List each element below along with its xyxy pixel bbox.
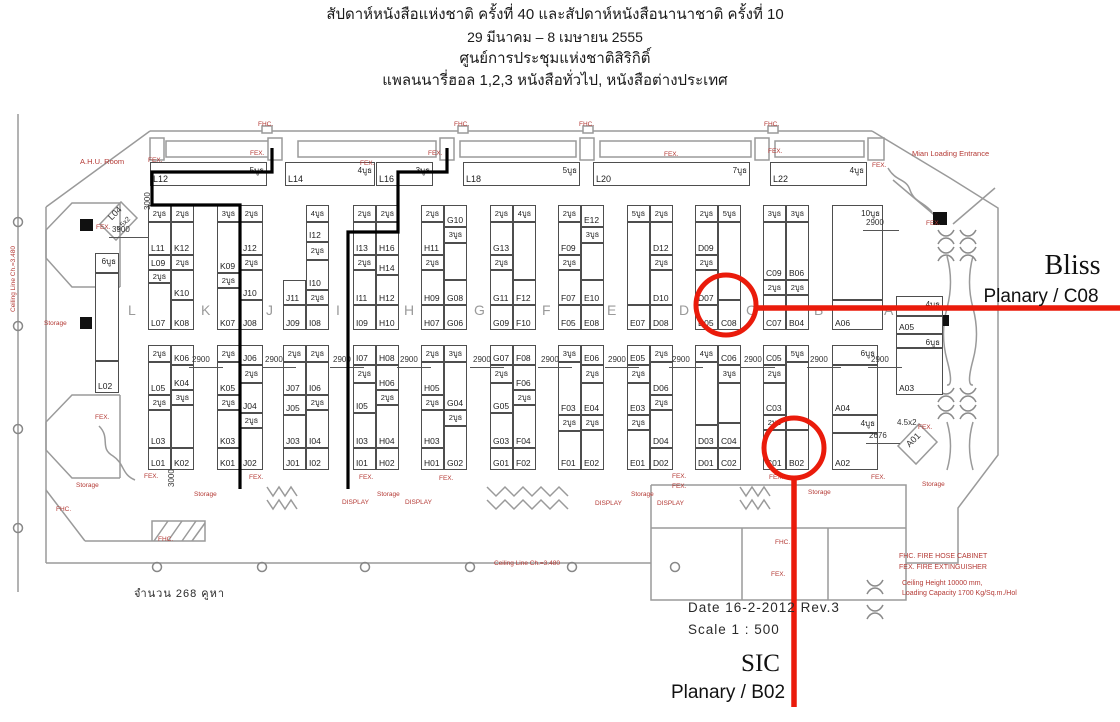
booth-id: H01 (424, 458, 440, 468)
booth-id: J02 (243, 458, 257, 468)
booth-cell-F07: F07 (558, 270, 581, 305)
booth-id: G07 (493, 353, 509, 363)
booth-count: 3บูธ (582, 229, 603, 241)
booth-cell-L07: L07 (148, 283, 171, 330)
booth-cell-2บูธ: 2บูธ (376, 390, 399, 405)
booth-cell-2บูธ: 2บูธ (490, 255, 513, 270)
booth-id: F06 (516, 378, 531, 388)
booth-cell-2บูธ: 2บูธ (217, 273, 240, 288)
booth-cell-E02: E02 (581, 430, 604, 470)
booth-id: C08 (721, 318, 737, 328)
plan-note: FEX. (96, 224, 110, 231)
zone-letter-C: C (746, 302, 756, 318)
plan-note: FEX. (926, 220, 940, 227)
zone-letter-G: G (474, 302, 485, 318)
booth-cell-J09: J09 (283, 305, 306, 330)
booth-count: 2บูธ (559, 208, 580, 220)
bliss-label: Bliss (1030, 250, 1115, 282)
booth-cell-I07: I07 (353, 345, 376, 365)
booth-cell-2บูธ: 2บูธ (421, 395, 444, 410)
booth-cell-2บูธ: 2บูธ (513, 390, 536, 405)
booth-count: 3บูธ (445, 229, 466, 241)
booth-count: 2บูธ (149, 348, 170, 360)
booth-cell-empty (627, 222, 650, 305)
booth-id: H10 (379, 318, 395, 328)
booth-cell-4บูธ: 4บูธ (513, 205, 536, 222)
booth-cell-2บูธ: 2บูธ (217, 395, 240, 410)
booth-cell-2บูธ: 2บูธ (695, 255, 718, 270)
booth-cell-2บูธ: 2บูธ (763, 415, 786, 430)
booth-id: H04 (379, 436, 395, 446)
dimension-label: L04 (106, 204, 124, 222)
booth-count: 2บูธ (307, 348, 328, 360)
dimension-line (807, 367, 841, 368)
booth-id: L02 (98, 381, 112, 391)
booth-cell-A03: A03 (896, 348, 943, 395)
booth-id: F03 (561, 403, 576, 413)
booth-id: E04 (584, 403, 599, 413)
booth-cell-2บูธ: 2บูธ (421, 255, 444, 270)
booth-cell-J12: J12 (240, 222, 263, 255)
booth-cell-2บูธ: 2บูธ (240, 255, 263, 270)
booth-id: F12 (516, 293, 531, 303)
booth-id: J09 (286, 318, 300, 328)
booth-count: 2บูธ (218, 348, 239, 360)
drawing-scale: Scale 1 : 500 (688, 622, 780, 637)
booth-cell-3บูธ: 3บูธ (444, 227, 467, 243)
booth-cell-empty (786, 362, 809, 430)
booth-cell-G01: G01 (490, 448, 513, 470)
booth-cell-2บูธ: 2บูธ (306, 345, 329, 362)
booth-count: 2บูธ (651, 257, 672, 269)
zone-letter-H: H (404, 302, 414, 318)
booth-cell-H11: H11 (421, 222, 444, 255)
booth-layout: 2บูธL11L092บูธL072บูธK122บูธK10K083บูธK0… (0, 0, 1120, 722)
booth-cell-3บูธ: 3บูธ (444, 345, 467, 362)
booth-id: I12 (309, 230, 321, 240)
booth-cell-3บูธ: 3บูธ (217, 205, 240, 222)
booth-id: D10 (653, 293, 669, 303)
plan-note: FEX. (918, 424, 932, 431)
booth-id: J01 (286, 458, 300, 468)
booth-count: 2บูธ (491, 257, 512, 269)
plan-note: Storage (194, 491, 217, 498)
booth-id: L03 (151, 436, 165, 446)
plan-note: FEX. (360, 160, 374, 167)
booth-cell-E07: E07 (627, 305, 650, 330)
booth-id: A05 (899, 322, 914, 332)
booth-count: 4บูธ (696, 348, 717, 360)
dimension-line (866, 443, 900, 444)
booth-id: K04 (174, 378, 189, 388)
booth-count: 2บูธ (764, 368, 785, 380)
booth-count: 3บูธ (559, 348, 580, 360)
booth-id: L07 (151, 318, 165, 328)
dimension-line (109, 237, 149, 238)
dimension-line (868, 367, 902, 368)
booth-cell-2บูธ: 2บูธ (171, 205, 194, 222)
plan-note: Ceiling Line Ch.=3.480 (494, 560, 560, 567)
booth-cell-I08: I08 (306, 305, 329, 330)
booth-id: G04 (447, 398, 463, 408)
booth-id: E07 (630, 318, 645, 328)
booth-id: K09 (220, 261, 235, 271)
booth-id: K02 (174, 458, 189, 468)
plan-note: FHC. (258, 121, 273, 128)
booth-cell-F06: F06 (513, 365, 536, 390)
booth-cell-H10: H10 (376, 305, 399, 330)
booth-cell-C03: C03 (763, 383, 786, 415)
dimension-label: 2900 (871, 355, 889, 364)
booth-cell-F01: F01 (558, 431, 581, 470)
booth-cell-C09: C09 (763, 222, 786, 280)
booth-cell-4บูธ: 4บูธ (896, 296, 943, 316)
plan-note: FEX. (672, 473, 686, 480)
dimension-line (538, 367, 572, 368)
booth-id: H09 (424, 293, 440, 303)
booth-cell-J11: J11 (283, 280, 306, 305)
booth-count: 2บูธ (651, 397, 672, 409)
booth-count: 2บูธ (149, 397, 170, 409)
booth-id: J04 (243, 401, 257, 411)
booth-count: 2บูธ (764, 282, 785, 294)
booth-cell-F04: F04 (513, 405, 536, 448)
booth-id: H12 (379, 293, 395, 303)
booth-count: 4บูธ (926, 298, 940, 311)
booth-id: J06 (243, 353, 257, 363)
booth-cell-2บูธ: 2บูธ (240, 205, 263, 222)
booth-cell-2บูธ: 2บูธ (650, 345, 673, 362)
booth-id: D08 (653, 318, 669, 328)
booth-count: 3บูธ (787, 208, 808, 220)
booth-id: H07 (424, 318, 440, 328)
booth-id: J07 (286, 383, 300, 393)
booth-id: E01 (630, 458, 645, 468)
booth-count: 6บูธ (102, 255, 116, 268)
dimension-label: 2900 (672, 355, 690, 364)
booth-count: 3บูธ (764, 208, 785, 220)
dimension-label: 2900 (333, 355, 351, 364)
booth-count: 2บูธ (491, 368, 512, 380)
booth-cell-G07: G07 (490, 345, 513, 365)
booth-cell-2บูธ: 2บูธ (786, 280, 809, 295)
plan-note: Storage (631, 491, 654, 498)
booth-count: 2บูธ (241, 415, 262, 427)
dimension-line (397, 367, 431, 368)
booth-id: C09 (766, 268, 782, 278)
booth-id: G02 (447, 458, 463, 468)
booth-count: 2บูธ (307, 245, 328, 257)
booth-id: K03 (220, 436, 235, 446)
booth-id: K01 (220, 458, 235, 468)
booth-cell-E03: E03 (627, 383, 650, 415)
booth-cell-K01: K01 (217, 448, 240, 470)
booth-count: 2บูธ (307, 292, 328, 304)
plan-note: FHC. (764, 121, 779, 128)
booth-id: G11 (493, 293, 508, 303)
booth-cell-L02: L02 (95, 361, 119, 393)
booth-cell-G04: G04 (444, 362, 467, 410)
booth-id: F01 (561, 458, 576, 468)
dimension-label: 2900 (744, 355, 762, 364)
booth-cell-K12: K12 (171, 222, 194, 255)
booth-count: 2บูธ (284, 348, 305, 360)
booth-cell-2บูธ: 2บูธ (763, 280, 786, 295)
booth-cell-C08: C08 (718, 300, 741, 330)
booth-cell-L05: L05 (148, 362, 171, 395)
booth-cell-E08: E08 (581, 305, 604, 330)
dimension-label: 2900 (265, 355, 283, 364)
booth-id: G01 (493, 458, 509, 468)
booth-cell-2บูธ: 2บูธ (581, 365, 604, 383)
dimension-line (262, 367, 296, 368)
booth-cell-J06: J06 (240, 345, 263, 365)
booth-cell-E06: E06 (581, 345, 604, 365)
booth-count: 7บูธ (733, 164, 747, 177)
booth-count: 2บูธ (559, 417, 580, 429)
booth-id: A06 (835, 318, 850, 328)
booth-id: G06 (447, 318, 463, 328)
booth-cell-L03: L03 (148, 410, 171, 448)
booth-cell-2บูธ: 2บูธ (353, 255, 376, 270)
booth-cell-G09: G09 (490, 305, 513, 330)
booth-count: 2บูธ (377, 208, 398, 220)
booth-count: 2บูธ (628, 368, 649, 380)
dimension-label: 2900 (400, 355, 418, 364)
booth-cell-K10: K10 (171, 270, 194, 300)
booth-cell-empty (171, 405, 194, 448)
booth-cell-G13: G13 (490, 222, 513, 255)
booth-count: 2บูธ (241, 257, 262, 269)
booth-cell-empty (95, 273, 119, 361)
booth-cell-C07: C07 (763, 295, 786, 330)
booth-cell-empty (718, 383, 741, 423)
booth-cell-I11: I11 (353, 270, 376, 305)
booth-cell-D12: D12 (650, 222, 673, 255)
booth-cell-J05: J05 (283, 395, 306, 415)
plan-note: Storage (377, 491, 400, 498)
booth-cell-L22: L224บูธ (770, 162, 867, 186)
booth-cell-G03: G03 (490, 413, 513, 448)
booth-cell-C05: C05 (763, 345, 786, 365)
booth-id: F07 (561, 293, 576, 303)
booth-count: 3บูธ (218, 208, 239, 220)
booth-id: L05 (151, 383, 165, 393)
plan-note: Mian Loading Entrance (912, 149, 989, 158)
booth-count: 5บูธ (719, 208, 740, 220)
booth-id: L01 (151, 458, 165, 468)
plan-note: DISPLAY (405, 499, 432, 506)
booth-id: I04 (309, 436, 321, 446)
booth-id: H05 (424, 383, 440, 393)
booth-count: 2บูธ (377, 392, 398, 404)
booth-id: C05 (766, 353, 782, 363)
booth-count: 2บูธ (445, 412, 466, 424)
booth-count: 2บูธ (172, 257, 193, 269)
plan-note: FEX. (359, 474, 373, 481)
booth-count: 2บูธ (628, 417, 649, 429)
booth-cell-F10: F10 (513, 305, 536, 330)
booth-cell-J10: J10 (240, 270, 263, 300)
booth-cell-J01: J01 (283, 448, 306, 470)
booth-id: D07 (698, 293, 714, 303)
booth-cell-H04: H04 (376, 405, 399, 448)
plan-note: FEX. (428, 150, 442, 157)
booth-cell-2บูธ: 2บูธ (353, 205, 376, 222)
booth-id: E08 (584, 318, 599, 328)
booth-cell-2บูธ: 2บูธ (217, 345, 240, 362)
booth-cell-J03: J03 (283, 415, 306, 448)
booth-cell-I05: I05 (353, 383, 376, 413)
booth-id: J10 (243, 288, 257, 298)
plan-note: Ceiling Height 10000 mm, (902, 580, 983, 587)
booth-id: C03 (766, 403, 782, 413)
booth-id: I03 (356, 436, 368, 446)
booth-cell-L09: L09 (148, 255, 171, 270)
booth-count: 2บูธ (241, 368, 262, 380)
plan-note: FHC. (775, 539, 790, 546)
plan-note: Storage (808, 489, 831, 496)
booth-id: F05 (561, 318, 576, 328)
plan-note: FEX. (664, 151, 678, 158)
booth-count: 2บูธ (307, 397, 328, 409)
booth-cell-E04: E04 (581, 383, 604, 415)
booth-count: 5บูธ (563, 164, 577, 177)
booth-cell-5บูธ: 5บูธ (718, 205, 741, 222)
plan-note: DISPLAY (342, 499, 369, 506)
plan-note: FHC. FIRE HOSE CABINET (899, 553, 987, 560)
booth-cell-K09: K09 (217, 222, 240, 273)
booth-id: J11 (286, 293, 299, 303)
booth-id: C07 (766, 318, 782, 328)
booth-cell-2บูธ: 2บูธ (240, 365, 263, 383)
booth-id: I01 (356, 458, 368, 468)
booth-id: J08 (243, 318, 257, 328)
booth-count: 2บูธ (149, 271, 170, 283)
dimension-label: 2900 (866, 218, 884, 227)
booth-cell-E01: E01 (627, 430, 650, 470)
booth-cell-2บูธ: 2บูธ (627, 415, 650, 430)
booth-cell-H01: H01 (421, 448, 444, 470)
booth-id: E05 (630, 353, 645, 363)
booth-id: C02 (721, 458, 737, 468)
booth-count: 2บูธ (241, 208, 262, 220)
booth-id: E03 (630, 403, 645, 413)
revision-date: Date 16-2-2012 Rev.3 (688, 600, 840, 615)
booth-count: 4บูธ (861, 417, 875, 430)
booth-id: I02 (309, 458, 321, 468)
booth-cell-E12: E12 (581, 205, 604, 227)
booth-cell-2บูธ: 2บูธ (444, 410, 467, 426)
booth-id: H02 (379, 458, 395, 468)
booth-cell-L11: L11 (148, 222, 171, 255)
booth-cell-2บูธ: 2บูธ (421, 205, 444, 222)
booth-id: L11 (151, 243, 165, 253)
booth-cell-3บูธ: 3บูธ (763, 205, 786, 222)
dimension-line (863, 230, 899, 231)
dimension-label: 3000 (167, 469, 176, 487)
booth-count: 4บูธ (307, 208, 328, 220)
booth-cell-6บูธ: 6บูธ (95, 253, 119, 273)
booth-cell-C04: C04 (718, 423, 741, 448)
dimension-line (470, 367, 504, 368)
booth-cell-G06: G06 (444, 305, 467, 330)
zone-letter-E: E (607, 302, 616, 318)
booth-cell-J02: J02 (240, 428, 263, 470)
booth-id: J03 (286, 436, 300, 446)
plan-note: Ceiling Line Ch.=3.480 (10, 246, 17, 312)
plan-note: FHC. (56, 506, 71, 513)
booth-id: I05 (356, 401, 368, 411)
booth-cell-empty (695, 362, 718, 425)
booth-cell-L12: L125บูธ (150, 162, 267, 186)
booth-id: G05 (493, 401, 509, 411)
booth-cell-E05: E05 (627, 345, 650, 365)
booth-cell-I03: I03 (353, 413, 376, 448)
booth-cell-2บูธ: 2บูธ (650, 255, 673, 270)
dimension-label: 2900 (541, 355, 559, 364)
booth-id: H03 (424, 436, 440, 446)
booth-cell-H16: H16 (376, 222, 399, 255)
booth-count: 2บูธ (422, 257, 443, 269)
dimension-line (741, 367, 775, 368)
booth-id: A03 (899, 383, 914, 393)
booth-cell-K06: K06 (171, 345, 194, 365)
booth-cell-I09: I09 (353, 305, 376, 330)
plan-note: FHC. (454, 121, 469, 128)
booth-id: C01 (766, 458, 782, 468)
booth-cell-4บูธ: 4บูธ (695, 345, 718, 362)
booth-cell-C06: C06 (718, 345, 741, 365)
booth-id: I09 (356, 318, 368, 328)
booth-cell-I02: I02 (306, 448, 329, 470)
booth-id: A04 (835, 403, 850, 413)
booth-cell-F03: F03 (558, 362, 581, 415)
booth-cell-2บูธ: 2บูธ (283, 345, 306, 362)
booth-cell-K02: K02 (171, 448, 194, 470)
booth-id: F08 (516, 353, 531, 363)
dimension-label: 2676 (869, 431, 887, 440)
booth-cell-2บูธ: 2บูธ (558, 255, 581, 270)
booth-cell-L20: L207บูธ (593, 162, 750, 186)
booth-id: I10 (309, 278, 321, 288)
booth-id: F09 (561, 243, 576, 253)
booth-count: 3บูธ (416, 164, 430, 177)
booth-cell-D02: D02 (650, 448, 673, 470)
booth-cell-empty (581, 243, 604, 280)
plan-note: FEX. (872, 162, 886, 169)
booth-cell-I06: I06 (306, 362, 329, 395)
booth-cell-H02: H02 (376, 448, 399, 470)
booth-id: L18 (466, 174, 481, 184)
booth-count: 2บูธ (422, 348, 443, 360)
zone-letter-F: F (542, 302, 551, 318)
plan-note: Storage (76, 482, 99, 489)
zone-letter-L: L (128, 302, 136, 318)
booth-cell-B02: B02 (786, 430, 809, 470)
booth-cell-H07: H07 (421, 305, 444, 330)
booth-cell-L01: L01 (148, 448, 171, 470)
dimension-label: 2900 (192, 355, 210, 364)
booth-id: F04 (516, 436, 531, 446)
dimension-label: 3000 (143, 192, 152, 210)
booth-cell-F12: F12 (513, 280, 536, 305)
booth-count: 2บูธ (218, 275, 239, 287)
booth-id: F10 (516, 318, 531, 328)
booth-count: 2บูธ (559, 257, 580, 269)
booth-cell-I04: I04 (306, 410, 329, 448)
booth-count: 2บูธ (422, 397, 443, 409)
